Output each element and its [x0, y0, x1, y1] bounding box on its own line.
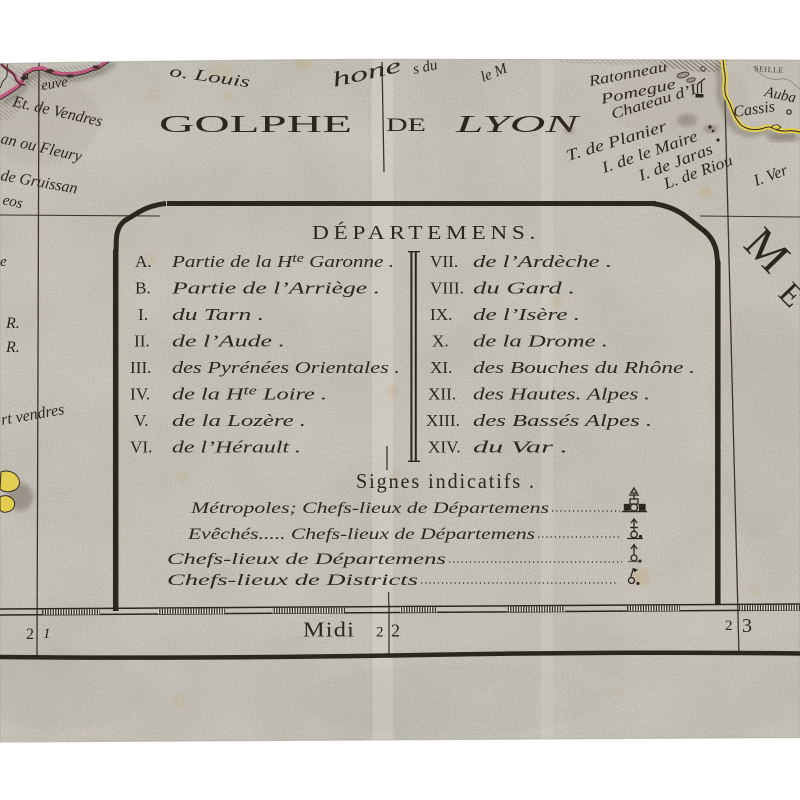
svg-text:Signes indicatifs .: Signes indicatifs .: [356, 469, 536, 493]
svg-text:IV.: IV.: [130, 385, 150, 404]
svg-text:Partie de la Hte Garonne .: Partie de la Hte Garonne .: [171, 250, 394, 271]
svg-text:de la Drome .: de la Drome .: [473, 332, 608, 351]
svg-text:III.: III.: [130, 358, 151, 377]
svg-text:IX.: IX.: [430, 305, 452, 324]
svg-text:2: 2: [391, 621, 400, 641]
svg-text:des Hautes. Alpes .: des Hautes. Alpes .: [473, 385, 650, 404]
svg-text:des Bassés Alpes .: des Bassés Alpes .: [473, 411, 652, 430]
svg-text:VII.: VII.: [430, 252, 458, 271]
svg-text:R.: R.: [5, 339, 20, 356]
svg-text:VI.: VI.: [130, 438, 152, 457]
svg-text:2: 2: [725, 618, 733, 634]
svg-text:du Var .: du Var .: [473, 438, 568, 457]
svg-text:de l’Aude .: de l’Aude .: [172, 332, 285, 351]
svg-text:XI.: XI.: [430, 358, 452, 377]
svg-text:de la Lozère .: de la Lozère .: [172, 411, 306, 430]
svg-text:3: 3: [742, 615, 752, 637]
svg-text:II.: II.: [134, 332, 150, 351]
svg-text:X.: X.: [432, 332, 449, 351]
svg-text:2: 2: [26, 626, 34, 643]
svg-text:A.: A.: [135, 252, 152, 271]
svg-text:DÉPARTEMENS.: DÉPARTEMENS.: [312, 221, 540, 244]
svg-text:du Tarn .: du Tarn .: [172, 305, 264, 324]
svg-text:GOLPHE: GOLPHE: [159, 112, 352, 138]
svg-text:DE: DE: [386, 115, 426, 136]
svg-text:des Pyrénées Orientales .: des Pyrénées Orientales .: [172, 358, 400, 377]
svg-text:de l’Isère .: de l’Isère .: [473, 305, 580, 324]
svg-text:XIV.: XIV.: [428, 438, 461, 457]
svg-text:VIII.: VIII.: [430, 279, 464, 298]
svg-text:1: 1: [43, 626, 51, 642]
svg-text:e: e: [0, 254, 7, 270]
svg-text:Chefs-lieux de Districts: Chefs-lieux de Districts: [167, 572, 418, 589]
svg-text:R.: R.: [5, 315, 20, 332]
svg-text:des Bouches du Rhône .: des Bouches du Rhône .: [473, 358, 695, 377]
svg-text:B.: B.: [135, 279, 151, 298]
svg-text:XIII.: XIII.: [426, 411, 460, 430]
svg-text:de l’Ardèche .: de l’Ardèche .: [473, 252, 612, 271]
svg-text:Evêchés..... Chefs-lieux de Dé: Evêchés..... Chefs-lieux de Départemens: [187, 526, 535, 543]
svg-text:de l’Hérault .: de l’Hérault .: [172, 438, 301, 457]
svg-text:Métropoles; Chefs-lieux de Dép: Métropoles; Chefs-lieux de Départemens: [190, 500, 549, 517]
svg-text:Midi: Midi: [303, 618, 355, 642]
svg-text:XII.: XII.: [428, 385, 456, 404]
svg-text:du Gard .: du Gard .: [473, 279, 575, 298]
svg-text:LYON: LYON: [454, 112, 582, 138]
svg-text:Chefs-lieux de Départemens: Chefs-lieux de Départemens: [167, 551, 446, 568]
svg-text:I.: I.: [138, 305, 148, 324]
svg-text:2: 2: [376, 625, 384, 641]
svg-text:Partie de l’Arriège .: Partie de l’Arriège .: [171, 279, 380, 298]
svg-text:V.: V.: [134, 411, 149, 430]
